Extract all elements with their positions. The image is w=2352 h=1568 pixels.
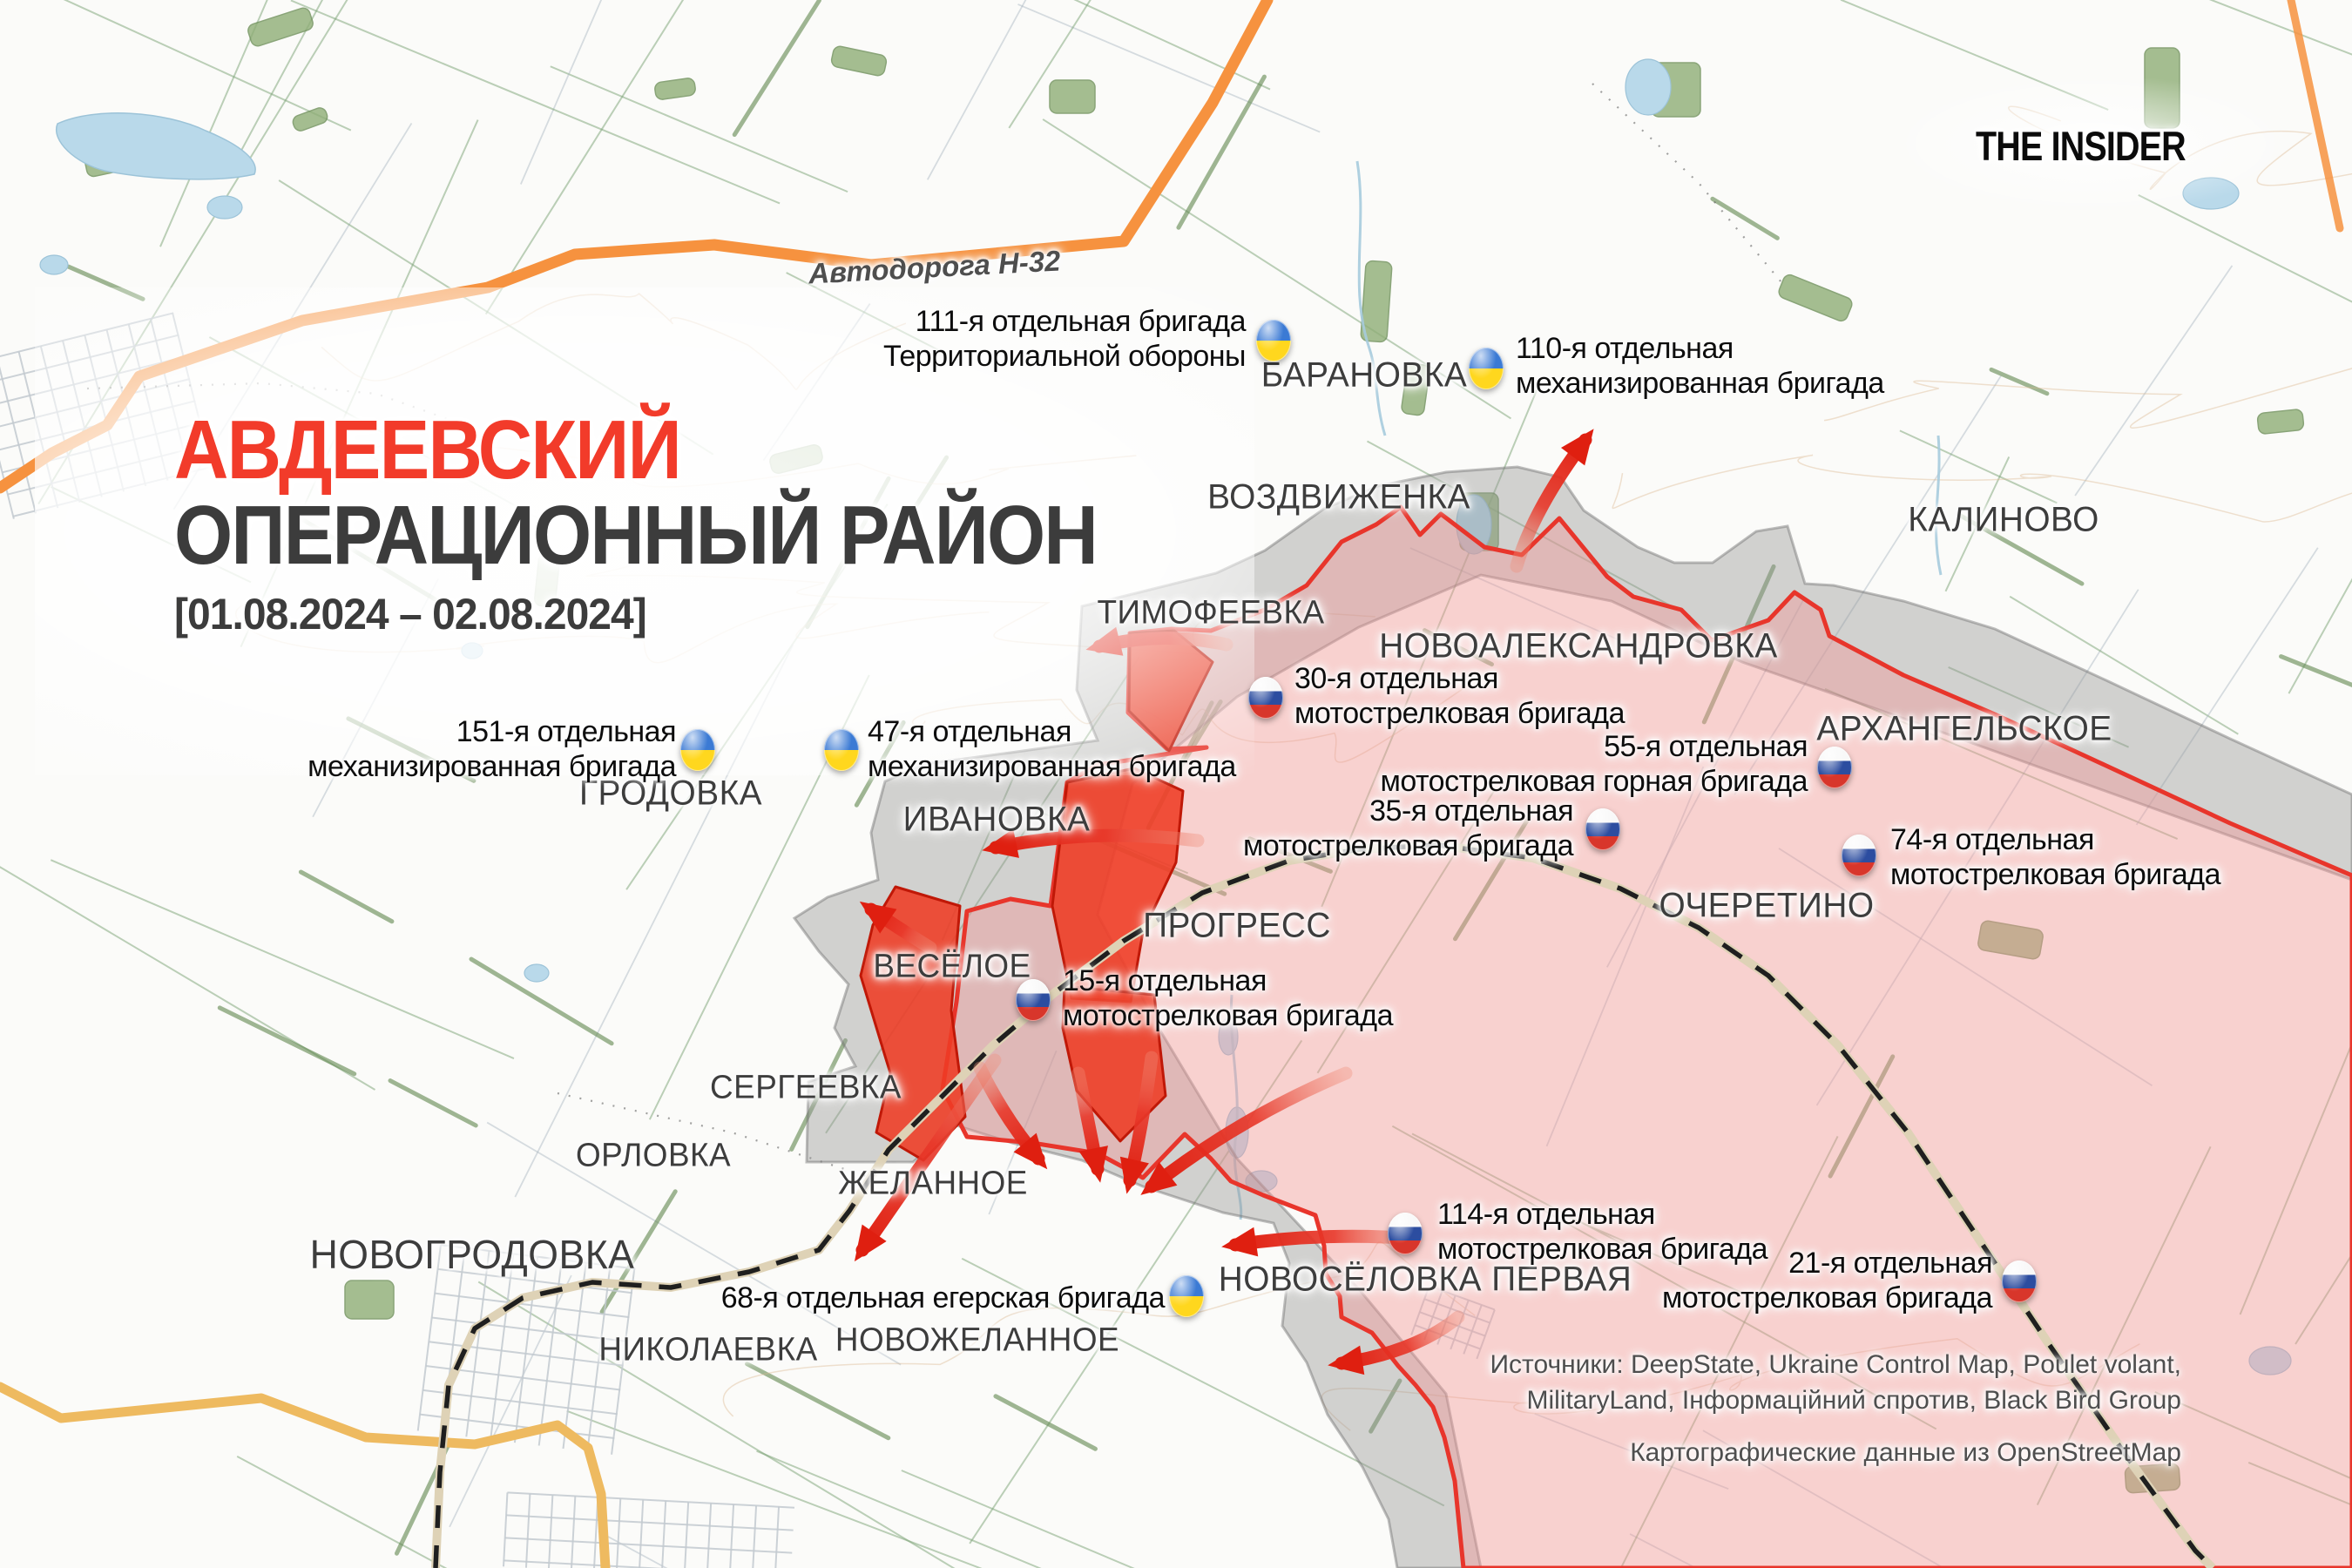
attack-arrow-head [1079,1146,1108,1183]
settlement-label-ivanovka: ИВАНОВКА [903,801,1091,840]
settlement-label-orlovka: ОРЛОВКА [576,1138,731,1175]
title-date-range: [01.08.2024 – 02.08.2024] [174,592,1159,637]
brigade-label-line: Территориальной обороны [883,339,1246,374]
settlement-label-vozdvizhenka: ВОЗДВИЖЕНКА [1207,478,1470,517]
the-insider-logo: THE INSIDER [1976,122,2186,170]
flag-ua-icon [1169,1275,1204,1317]
brigade-label-line: 68-я отдельная егерская бригада [721,1281,1165,1315]
secondary-road-northeast [2291,0,2340,228]
settlement-label-arkhangelskoe: АРХАНГЕЛЬСКОЕ [1816,710,2112,749]
brigade-label-35: 35-я отдельнаямотострелковая бригада [1243,794,1573,863]
brigade-label-line: механизированная бригада [308,749,676,784]
settlement-label-novoaleksandrovka: НОВОАЛЕКСАНДРОВКА [1379,627,1778,666]
brigade-label-line: механизированная бригада [868,749,1236,784]
osm-attribution: Картографические данные из OpenStreetMap [1490,1435,2181,1470]
settlement-label-veseloe: ВЕСЁЛОЕ [873,949,1031,986]
flag-ru-icon [1842,835,1876,876]
flag-ru-icon [1016,979,1051,1021]
settlement-label-zhelannoe: ЖЕЛАННОЕ [838,1166,1028,1203]
settlement-label-kalinovo: КАЛИНОВО [1908,501,2099,540]
flag-ru-icon [1585,808,1620,850]
brigade-label-line: мотострелковая бригада [1890,857,2220,892]
brigade-label-111: 111-я отдельная бригадаТерриториальной о… [883,304,1246,374]
brigade-label-110: 110-я отдельнаямеханизированная бригада [1516,331,1884,401]
flag-ru-icon [1817,747,1852,788]
title-block: АВДЕЕВСКИЙ ОПЕРАЦИОННЫЙ РАЙОН [01.08.202… [174,408,1200,637]
brigade-label-line: мотострелковая бригада [1294,696,1625,731]
brigade-label-55: 55-я отдельнаямотострелковая горная бриг… [1380,729,1808,799]
flag-ua-icon [1469,348,1504,389]
brigade-label-30: 30-я отдельнаямотострелковая бригада [1294,661,1625,731]
brigade-label-line: 21-я отдельная [1662,1246,1992,1281]
brigade-label-line: 110-я отдельная [1516,331,1884,366]
brigade-label-line: 74-я отдельная [1890,822,2220,857]
settlement-label-baranovka: БАРАНОВКА [1261,356,1468,395]
brigade-label-line: 15-я отдельная [1063,963,1393,998]
settlement-label-sergeevka: СЕРГЕЕВКА [710,1070,902,1107]
settlement-label-nikolaevka: НИКОЛАЕВКА [598,1332,817,1369]
sources-line-2: MilitaryLand, Інформаційний спротив, Bla… [1490,1382,2181,1418]
brigade-label-74: 74-я отдельнаямотострелковая бригада [1890,822,2220,892]
attack-arrow-head [1221,1227,1258,1257]
brigade-label-line: 35-я отдельная [1243,794,1573,828]
brigade-label-line: 55-я отдельная [1380,729,1808,764]
flag-ru-icon [1248,677,1283,719]
settlement-label-timofeevka: ТИМОФЕЕВКА [1097,595,1324,632]
brigade-label-line: 114-я отдельная [1437,1197,1767,1232]
brigade-label-21: 21-я отдельнаямотострелковая бригада [1662,1246,1992,1315]
flag-ru-icon [1388,1213,1423,1254]
flag-ua-icon [1256,320,1291,362]
brigade-label-line: 47-я отдельная [868,714,1236,749]
brigade-label-line: 111-я отдельная бригада [883,304,1246,339]
settlement-label-novogrodovka: НОВОГРОДОВКА [310,1231,635,1278]
flag-ua-icon [824,729,859,771]
map-infographic: АВДЕЕВСКИЙ ОПЕРАЦИОННЫЙ РАЙОН [01.08.202… [0,0,2352,1568]
brigade-label-47: 47-я отдельнаямеханизированная бригада [868,714,1236,784]
brigade-label-line: мотострелковая бригада [1662,1281,1992,1315]
brigade-label-line: 151-я отдельная [308,714,676,749]
brigade-label-line: мотострелковая бригада [1243,828,1573,863]
brigade-label-151: 151-я отдельнаямеханизированная бригада [308,714,676,784]
sources-line-1: Источники: DeepState, Ukraine Control Ma… [1490,1347,2181,1382]
brigade-label-line: 30-я отдельная [1294,661,1625,696]
settlement-label-novozhelannoe: НОВОЖЕЛАННОЕ [835,1322,1119,1360]
flag-ru-icon [2002,1260,2037,1302]
title-line-dark: ОПЕРАЦИОННЫЙ РАЙОН [174,493,1097,578]
settlement-label-progress: ПРОГРЕСС [1143,907,1331,946]
settlement-label-ocheretino: ОЧЕРЕТИНО [1659,887,1875,926]
brigade-label-68: 68-я отдельная егерская бригада [721,1281,1165,1315]
flag-ua-icon [680,729,715,771]
secondary-road-southwest [0,1387,605,1568]
brigade-label-line: мотострелковая бригада [1063,998,1393,1033]
brigade-label-15: 15-я отдельнаямотострелковая бригада [1063,963,1393,1033]
sources-note: Источники: DeepState, Ukraine Control Ma… [1490,1347,2181,1470]
title-line-red: АВДЕЕВСКИЙ [174,408,1097,493]
brigade-label-line: механизированная бригада [1516,366,1884,401]
